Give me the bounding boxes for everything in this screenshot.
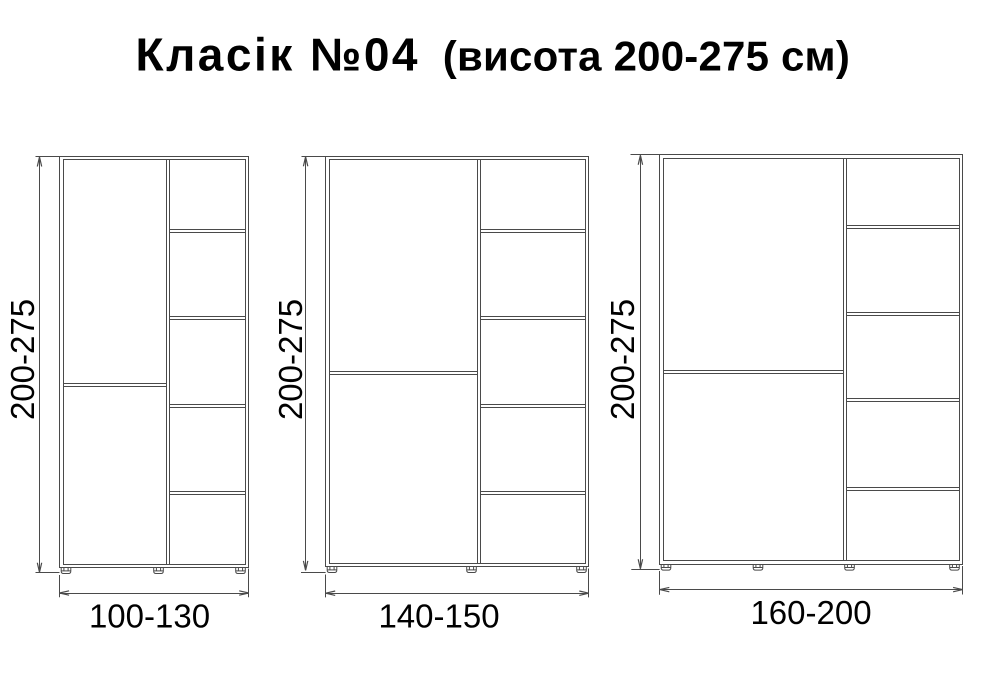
svg-text:Класік №04: Класік №04: [136, 29, 421, 81]
svg-text:(висота 200-275 см): (висота 200-275 см): [443, 33, 850, 80]
svg-text:200-275: 200-275: [604, 299, 641, 420]
svg-text:200-275: 200-275: [4, 299, 41, 420]
svg-text:160-200: 160-200: [750, 594, 871, 631]
svg-text:140-150: 140-150: [378, 598, 499, 635]
svg-text:100-130: 100-130: [89, 598, 210, 635]
svg-text:200-275: 200-275: [272, 299, 309, 420]
